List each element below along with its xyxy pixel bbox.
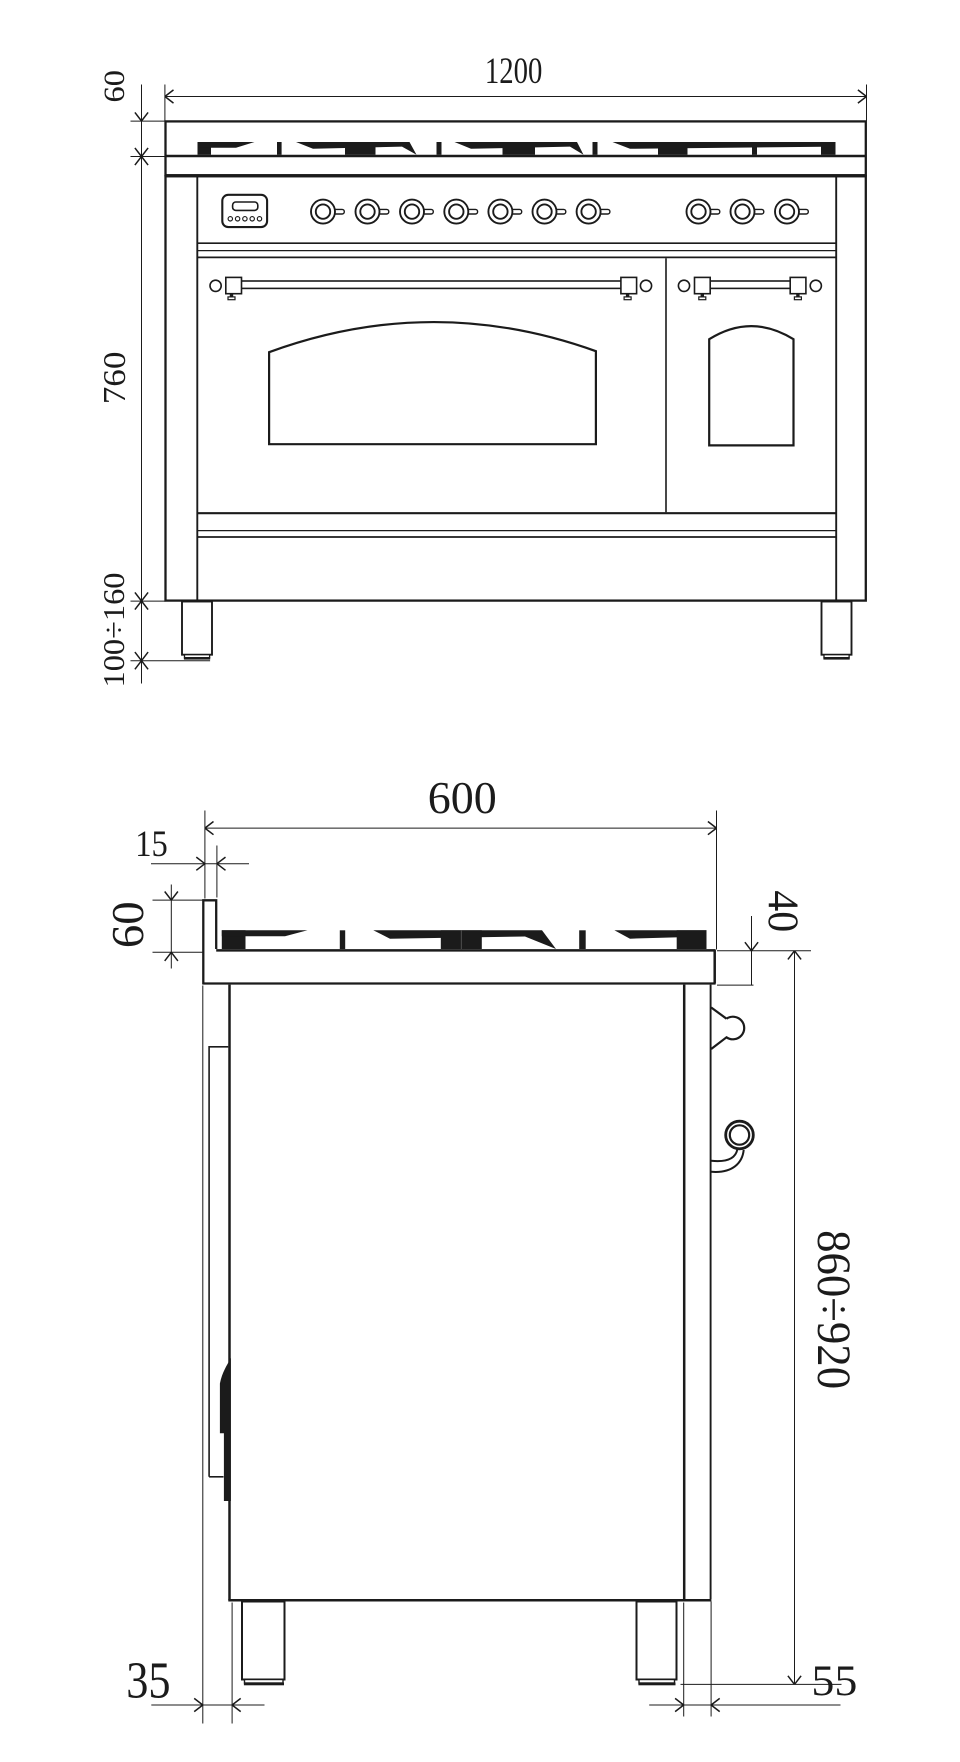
svg-text:60: 60 (103, 901, 153, 948)
svg-text:100÷160: 100÷160 (97, 573, 131, 688)
svg-text:35: 35 (126, 1652, 170, 1709)
svg-text:55: 55 (811, 1658, 857, 1705)
svg-text:15: 15 (135, 823, 168, 864)
svg-text:60: 60 (98, 70, 131, 102)
svg-text:760: 760 (96, 352, 132, 405)
svg-text:860÷920: 860÷920 (807, 1230, 860, 1389)
svg-text:1200: 1200 (485, 50, 543, 91)
svg-text:40: 40 (759, 890, 806, 932)
svg-text:600: 600 (428, 772, 497, 823)
